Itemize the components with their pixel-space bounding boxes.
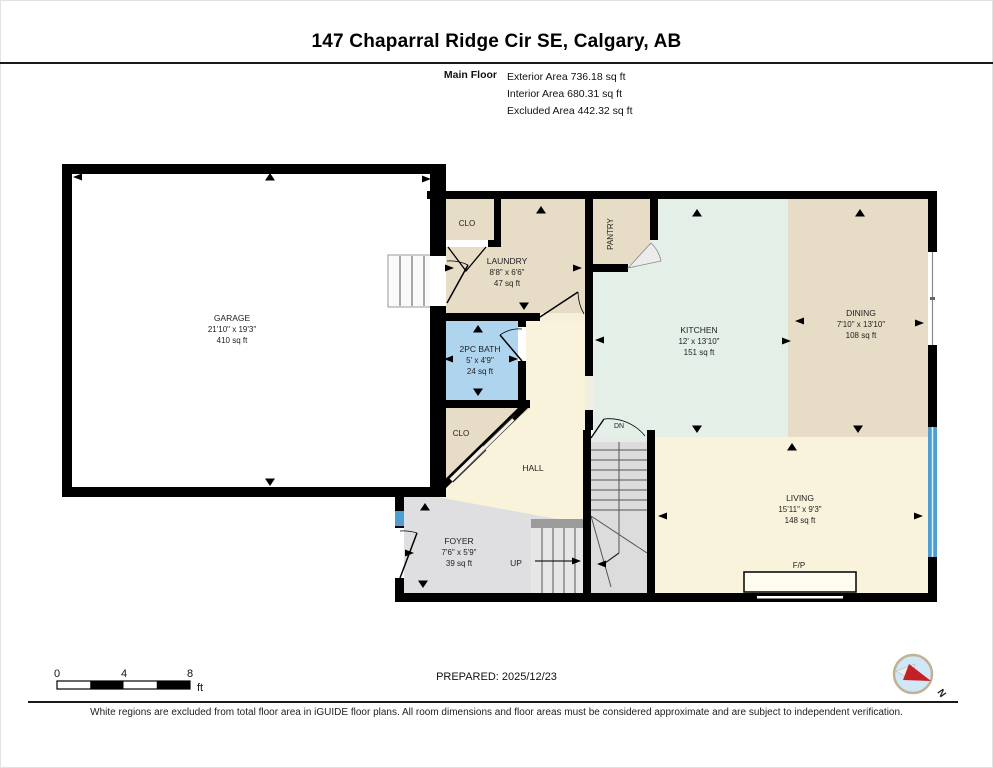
compass-north-label: N (935, 687, 948, 699)
kitchen-dims: 12' x 13'10" (678, 337, 719, 346)
footer-rule (28, 701, 958, 703)
foyer-window (395, 511, 404, 526)
dining-area: 108 sq ft (846, 331, 877, 340)
closet-upper-label: CLO (459, 219, 475, 228)
scale-unit: ft (197, 682, 203, 694)
laundry-dims: 8'8" x 6'6" (490, 268, 525, 277)
living-area: 148 sq ft (785, 516, 816, 525)
prepared-date: PREPARED: 2025/12/23 (0, 671, 993, 683)
hall-label: HALL (522, 463, 544, 473)
garage-dims: 21'10" x 19'3" (208, 325, 256, 334)
foyer-label: FOYER (444, 536, 473, 546)
laundry-area: 47 sq ft (494, 279, 521, 288)
disclaimer: White regions are excluded from total fl… (0, 707, 993, 718)
room-living (655, 437, 928, 593)
bath-area: 24 sq ft (467, 367, 494, 376)
header-rule (0, 62, 993, 64)
garage-area: 410 sq ft (217, 336, 248, 345)
dining-label: DINING (846, 308, 876, 318)
fireplace (744, 572, 856, 592)
bath-dims: 5' x 4'9" (466, 356, 494, 365)
garage-label: GARAGE (214, 313, 251, 323)
stairs-up-label: UP (510, 558, 522, 568)
foyer-area: 39 sq ft (446, 559, 473, 568)
bath-label: 2PC BATH (460, 344, 501, 354)
closet-lower-label: CLO (453, 429, 469, 438)
stairs-up-edge (531, 519, 586, 528)
living-dims: 15'11" x 9'3" (778, 505, 821, 514)
floorplan-canvas: GARAGE 21'10" x 19'3" 410 sq ft CLO LAUN… (0, 0, 993, 768)
floorplan-page: 147 Chaparral Ridge Cir SE, Calgary, AB … (0, 0, 993, 768)
kitchen-label: KITCHEN (680, 325, 717, 335)
dining-dims: 7'10" x 13'10" (837, 320, 885, 329)
laundry-label: LAUNDRY (487, 256, 528, 266)
foyer-dims: 7'6" x 5'9" (442, 548, 477, 557)
stairs-down-label: DN (614, 423, 624, 430)
room-dining (788, 199, 928, 437)
fireplace-label: F/P (793, 561, 805, 570)
pantry-label: PANTRY (606, 217, 615, 249)
dining-window-mullion (930, 297, 935, 300)
kitchen-area: 151 sq ft (684, 348, 715, 357)
living-label: LIVING (786, 493, 814, 503)
